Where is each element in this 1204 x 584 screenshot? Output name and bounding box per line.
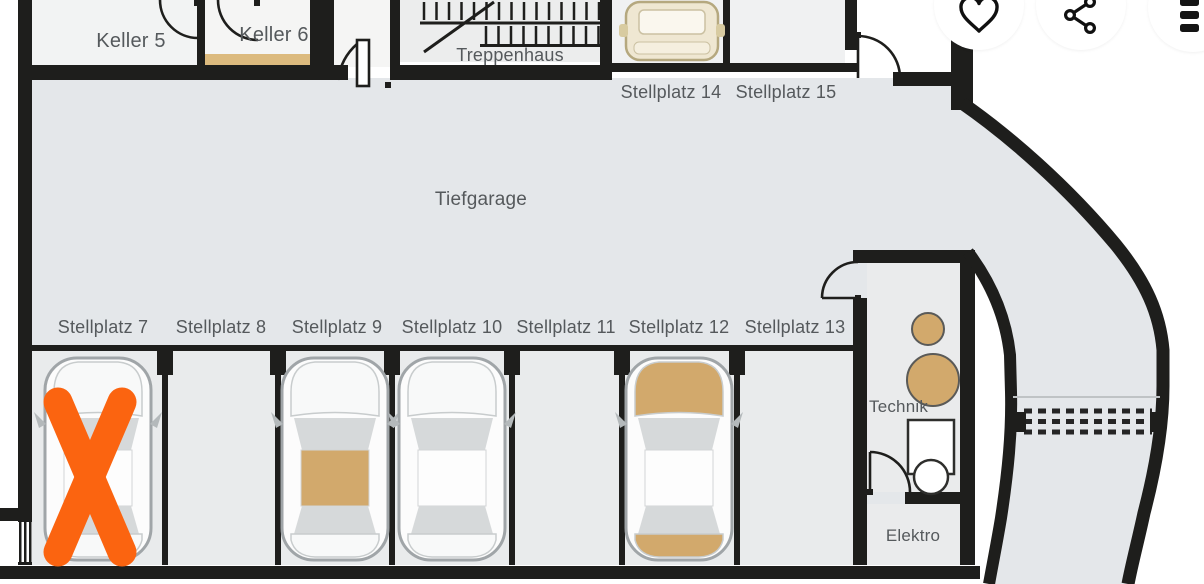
share-icon (1061, 0, 1101, 35)
label-stellplatz-11: Stellplatz 11 (516, 317, 615, 338)
label-keller6: Keller 6 (239, 24, 308, 47)
label-keller5: Keller 5 (96, 30, 165, 53)
label-stellplatz-15: Stellplatz 15 (736, 82, 837, 103)
label-stellplatz-13: Stellplatz 13 (745, 317, 846, 338)
wall-window-hatch (18, 522, 32, 562)
label-technik: Technik (869, 397, 928, 417)
label-stellplatz-12: Stellplatz 12 (629, 317, 730, 338)
ramp-floor (962, 78, 1163, 584)
screenshot-stage: Keller 5 Keller 6 Treppenhaus Stellplatz… (0, 0, 1204, 584)
heart-icon (957, 0, 1001, 36)
equipment-drum (914, 460, 948, 494)
floorplan-drawing (0, 0, 1204, 584)
label-stellplatz-9: Stellplatz 9 (292, 317, 382, 338)
kebab-menu-icon (1178, 0, 1202, 34)
label-stellplatz-8: Stellplatz 8 (176, 317, 266, 338)
label-treppenhaus: Treppenhaus (456, 45, 564, 66)
label-stellplatz-7: Stellplatz 7 (58, 317, 148, 338)
label-tiefgarage: Tiefgarage (435, 189, 527, 211)
tank-small (912, 313, 944, 345)
car-top-view (388, 358, 516, 560)
car-top-view (271, 358, 399, 560)
label-elektro: Elektro (886, 526, 940, 546)
car-front-view (619, 2, 725, 60)
car-top-view (615, 358, 743, 560)
label-stellplatz-14: Stellplatz 14 (621, 82, 722, 103)
label-stellplatz-10: Stellplatz 10 (402, 317, 503, 338)
